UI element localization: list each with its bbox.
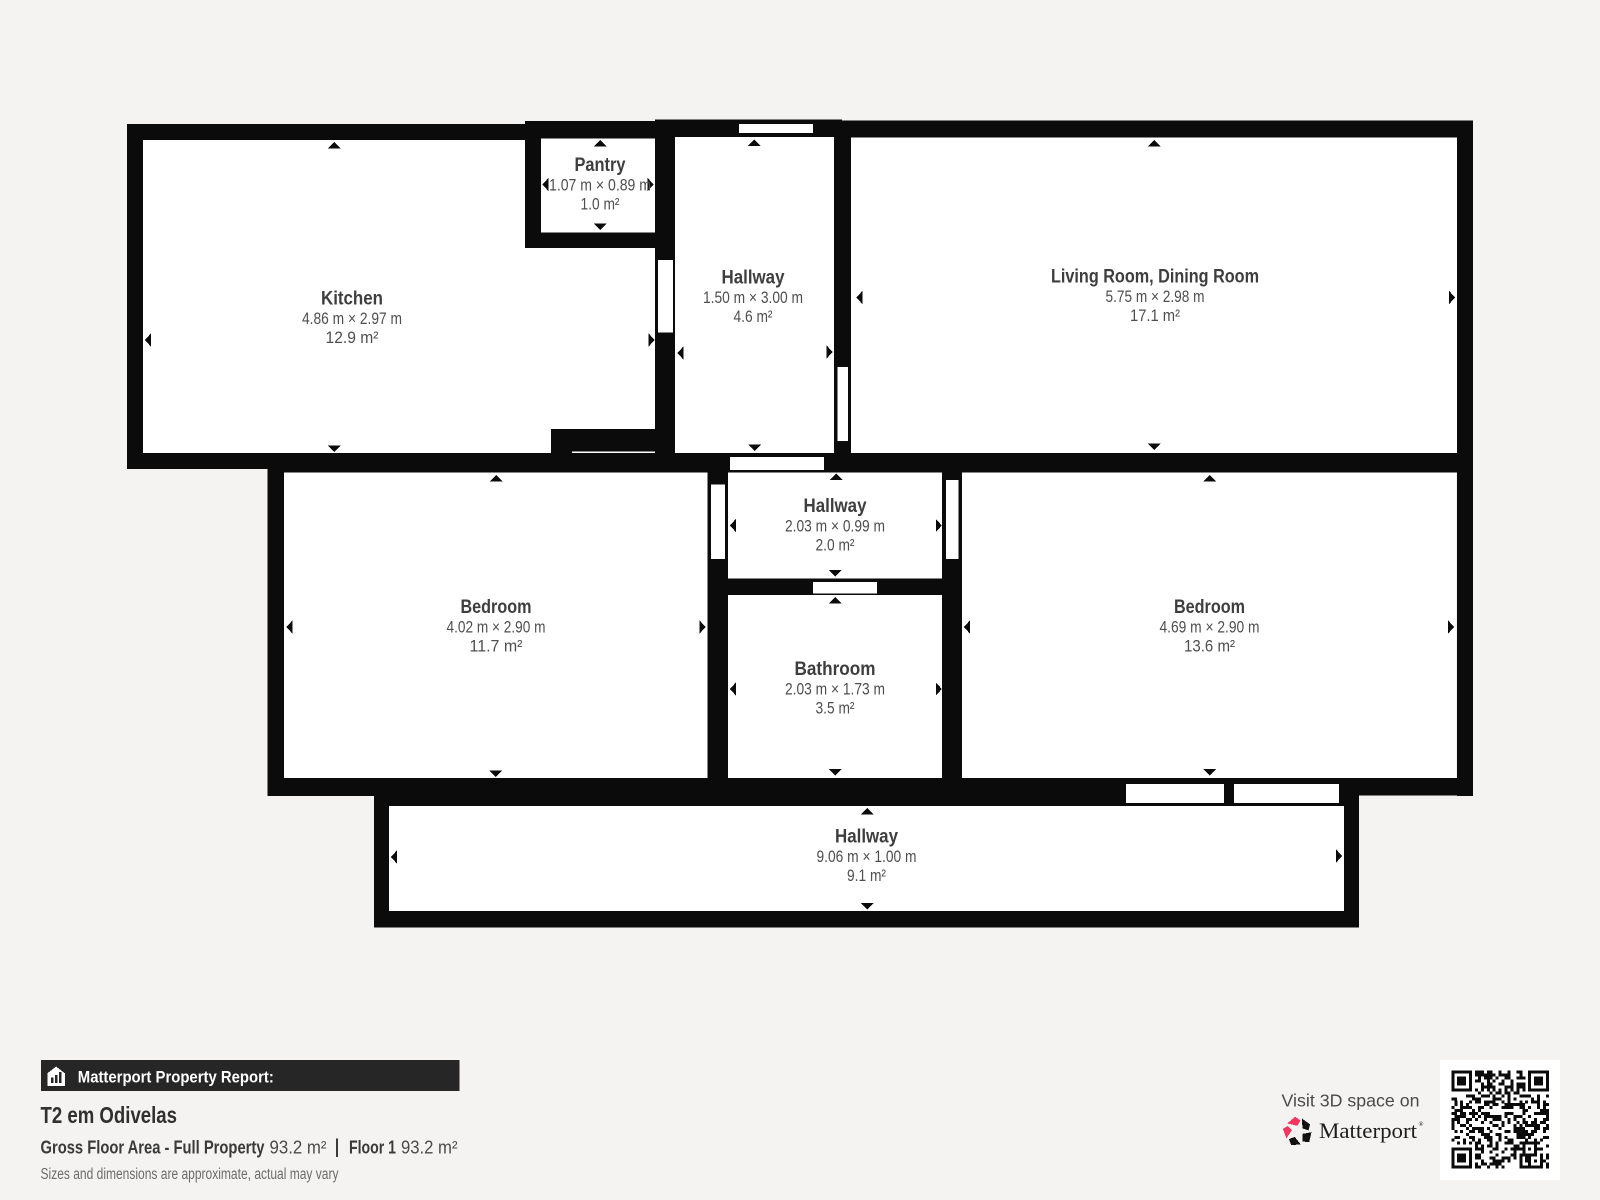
svg-text:Living Room, Dining Room: Living Room, Dining Room <box>1051 267 1259 288</box>
svg-text:17.1 m²: 17.1 m² <box>1130 306 1180 325</box>
svg-text:2.0 m²: 2.0 m² <box>816 536 855 555</box>
svg-text:Gross Floor Area - Full Proper: Gross Floor Area - Full Property <box>41 1138 265 1158</box>
svg-text:Matterport: Matterport <box>1319 1118 1417 1143</box>
svg-text:Visit 3D space on: Visit 3D space on <box>1282 1091 1420 1111</box>
svg-text:4.6 m²: 4.6 m² <box>734 307 773 326</box>
svg-text:3.5 m²: 3.5 m² <box>816 699 855 718</box>
svg-text:Kitchen: Kitchen <box>321 289 383 310</box>
svg-text:Hallway: Hallway <box>835 827 898 848</box>
svg-text:Bathroom: Bathroom <box>795 659 876 680</box>
svg-text:2.03 m × 0.99 m: 2.03 m × 0.99 m <box>785 517 885 536</box>
svg-text:Sizes and dimensions are appro: Sizes and dimensions are approximate, ac… <box>41 1166 339 1183</box>
svg-text:T2 em Odivelas: T2 em Odivelas <box>41 1102 178 1128</box>
svg-text:11.7 m²: 11.7 m² <box>470 636 523 655</box>
svg-text:9.1 m²: 9.1 m² <box>847 866 886 885</box>
svg-text:1.50 m × 3.00 m: 1.50 m × 3.00 m <box>703 288 803 307</box>
svg-text:93.2 m²: 93.2 m² <box>270 1138 327 1158</box>
svg-text:5.75 m × 2.98 m: 5.75 m × 2.98 m <box>1106 287 1205 306</box>
svg-text:93.2 m²: 93.2 m² <box>401 1138 458 1158</box>
svg-text:4.86 m × 2.97 m: 4.86 m × 2.97 m <box>302 309 402 328</box>
svg-text:Hallway: Hallway <box>722 268 785 289</box>
svg-text:Bedroom: Bedroom <box>1174 597 1245 618</box>
svg-text:13.6 m²: 13.6 m² <box>1184 636 1235 655</box>
svg-text:4.69 m × 2.90 m: 4.69 m × 2.90 m <box>1160 617 1260 636</box>
svg-text:Pantry: Pantry <box>575 155 626 176</box>
svg-text:2.03 m × 1.73 m: 2.03 m × 1.73 m <box>785 680 885 699</box>
svg-text:12.9 m²: 12.9 m² <box>326 328 379 347</box>
svg-text:Bedroom: Bedroom <box>461 597 532 618</box>
svg-text:1.07 m × 0.89 m: 1.07 m × 0.89 m <box>549 176 651 195</box>
svg-text:Hallway: Hallway <box>804 496 867 517</box>
svg-text:9.06 m × 1.00 m: 9.06 m × 1.00 m <box>817 847 917 866</box>
svg-text:Floor 1: Floor 1 <box>349 1138 396 1158</box>
svg-text:Matterport Property Report:: Matterport Property Report: <box>78 1068 274 1087</box>
svg-text:4.02 m × 2.90 m: 4.02 m × 2.90 m <box>447 617 546 636</box>
svg-text:1.0 m²: 1.0 m² <box>581 195 620 214</box>
svg-text:®: ® <box>1419 1121 1424 1128</box>
